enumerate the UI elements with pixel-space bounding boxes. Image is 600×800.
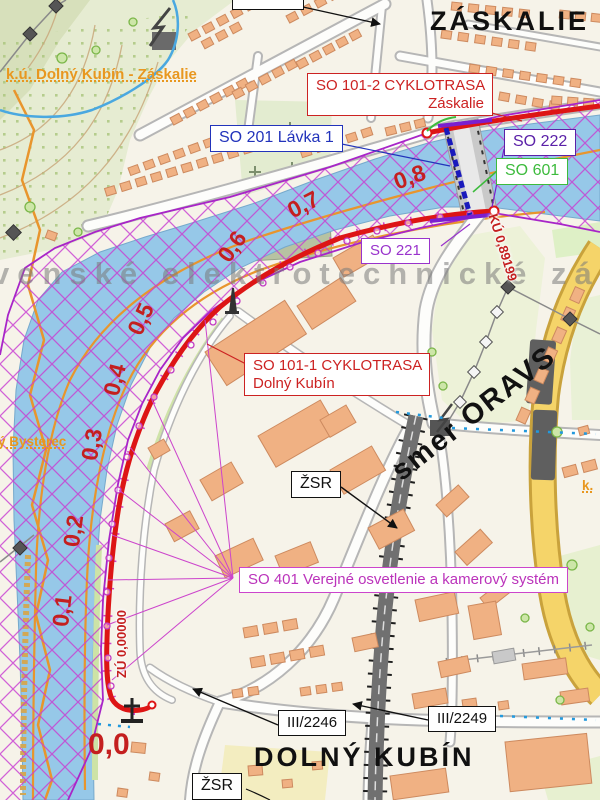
callout-text: Záskalie xyxy=(316,95,484,113)
place-label-dolny-kubin: DOLNÝ KUBÍN xyxy=(254,742,475,773)
callout-so601: SO 601 xyxy=(496,158,568,185)
callout-road-2249: III/2249 xyxy=(428,706,496,732)
place-label-zaskalie: ZÁSKALIE xyxy=(430,6,589,37)
chainage-0-0: 0,0 xyxy=(88,728,130,762)
callout-text: SO 201 Lávka 1 xyxy=(219,129,334,148)
callout-text: ŽSR xyxy=(201,777,233,796)
chainage-0-3: 0,3 xyxy=(76,427,108,463)
callout-text: SO 101-2 CYKLOTRASA xyxy=(316,77,484,95)
cadastral-label-right: k. xyxy=(582,478,593,493)
callout-text: SO 221 xyxy=(370,242,421,260)
chainage-start-label: ZÚ 0,00000 xyxy=(114,610,129,678)
callout-text: III/2246 xyxy=(287,714,337,732)
chainage-0-1: 0,1 xyxy=(47,593,78,628)
callout-text: SO 222 xyxy=(513,133,567,152)
map-canvas[interactable]: venské elektrotechnické závod ZÁSKALIE D… xyxy=(0,0,600,800)
callout-zsr-2: ŽSR xyxy=(192,773,242,800)
callout-so401: SO 401 Verejné osvetlenie a kamerový sys… xyxy=(239,567,568,593)
callout-text: ŽSR xyxy=(300,475,332,494)
cadastral-label-left: ý Bysterec xyxy=(0,434,66,449)
callout-so222: SO 222 xyxy=(504,129,576,156)
callout-so101-2: SO 101-2 CYKLOTRASA Záskalie xyxy=(307,73,493,116)
callout-text: SO 101-1 CYKLOTRASA xyxy=(253,357,421,375)
callout-so221: SO 221 xyxy=(361,238,430,264)
callout-text: Dolný Kubín xyxy=(253,375,421,393)
callout-zsr-1: ŽSR xyxy=(291,471,341,498)
callout-text: SO 401 Verejné osvetlenie a kamerový sys… xyxy=(248,571,559,589)
chainage-0-2: 0,2 xyxy=(58,513,89,548)
callout-cutoff-top xyxy=(232,0,304,10)
callout-road-2246: III/2246 xyxy=(278,710,346,736)
callout-text: III/2249 xyxy=(437,710,487,728)
callout-so201: SO 201 Lávka 1 xyxy=(210,125,343,152)
cadastral-label-top: k.ú. Dolný Kubín - Záskalie xyxy=(6,66,197,83)
callout-so101-1: SO 101-1 CYKLOTRASA Dolný Kubín xyxy=(244,353,430,396)
callout-text: SO 601 xyxy=(505,162,559,181)
